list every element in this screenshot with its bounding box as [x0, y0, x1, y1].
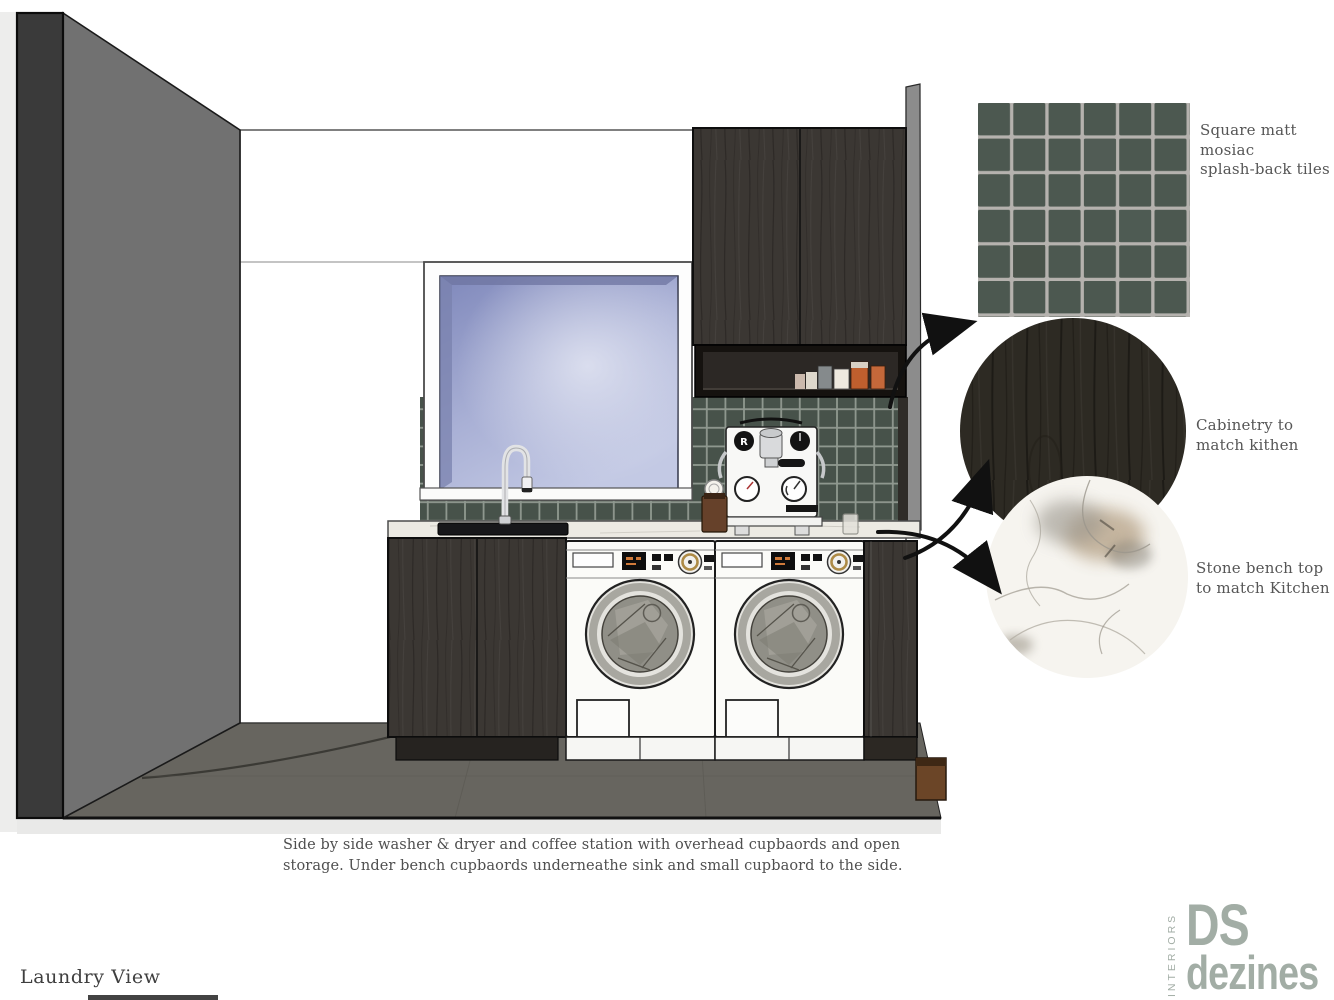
page-edge-mark — [88, 995, 218, 1000]
right-wall-return — [906, 84, 921, 530]
glass-cup — [843, 514, 858, 534]
overhead-cupboards — [693, 128, 906, 345]
stone-swatch — [986, 476, 1188, 678]
logo-dezines-text: dezines — [1186, 949, 1318, 996]
tiles-annotation: Square matt mosiac splash-back tiles — [1200, 121, 1334, 180]
cabinet-side-panel — [898, 397, 908, 521]
logo-interiors-text: INTERIORS — [1166, 915, 1178, 997]
left-wall — [17, 13, 240, 818]
coffee-canister — [702, 496, 727, 532]
tile-swatch — [978, 103, 1190, 317]
ds-dezines-logo: INTERIORS DS dezines — [1160, 905, 1334, 1000]
portafilter-handle — [778, 459, 805, 467]
kickboard — [396, 737, 558, 760]
washing-machine — [566, 541, 715, 760]
svg-text:R: R — [740, 437, 748, 448]
side-cupboard — [864, 541, 917, 760]
window — [420, 262, 692, 500]
wooden-step — [916, 758, 946, 800]
dryer-drawer — [726, 700, 778, 737]
render-margin-bottom — [17, 818, 941, 834]
render-margin-left — [0, 12, 17, 832]
window-sill — [420, 488, 692, 500]
material-swatches — [878, 103, 1190, 678]
left-wall-edge — [17, 13, 63, 818]
open-shelf — [695, 345, 906, 397]
stone-annotation: Stone bench top to match Kitchen — [1196, 559, 1334, 598]
under-bench-cupboards — [388, 538, 566, 760]
laundry-design-board: R — [0, 0, 1334, 1000]
dryer-door — [735, 580, 843, 688]
washer-door — [586, 580, 694, 688]
view-title: Laundry View — [20, 966, 161, 988]
washer-drawer — [577, 700, 629, 737]
cabinetry-annotation: Cabinetry to match kithen — [1196, 416, 1334, 455]
render-caption: Side by side washer & dryer and coffee s… — [283, 835, 959, 877]
dryer — [715, 541, 864, 760]
